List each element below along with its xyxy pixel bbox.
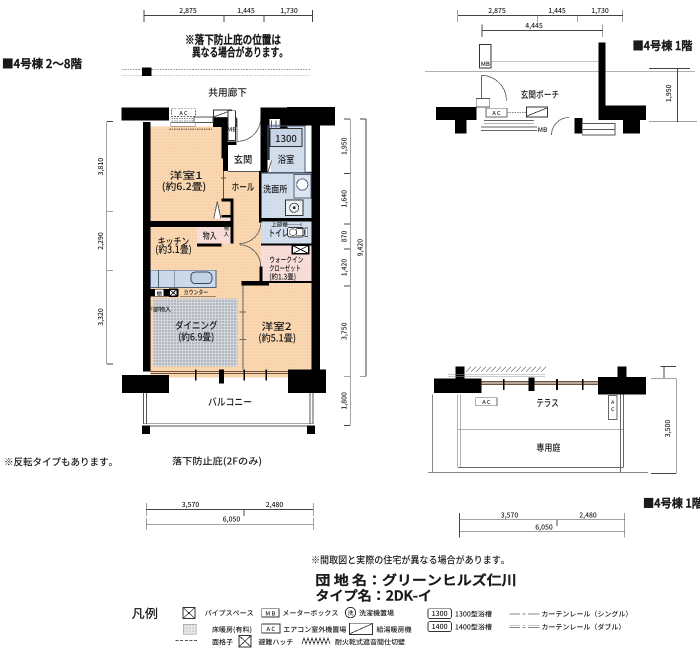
svg-text:2,480: 2,480 (266, 499, 284, 509)
svg-text:M B: M B (265, 608, 275, 617)
svg-text:トイレ: トイレ (268, 225, 288, 239)
svg-text:1300: 1300 (275, 131, 297, 145)
svg-text:メーターボックス: メーターボックス (282, 609, 338, 619)
svg-text:※反転タイプもあります。: ※反転タイプもあります。 (4, 454, 118, 469)
svg-text:3,500: 3,500 (662, 420, 672, 438)
svg-text:※間取図と実際の住宅が異なる場合があります。: ※間取図と実際の住宅が異なる場合があります。 (311, 552, 510, 567)
svg-text:給湯暖房機: 給湯暖房機 (377, 625, 412, 635)
svg-text:9,420: 9,420 (354, 239, 364, 257)
svg-text:A C: A C (492, 109, 501, 117)
svg-text:1,730: 1,730 (280, 5, 298, 15)
svg-text:A C: A C (482, 398, 491, 406)
svg-text:落下防止庇(2Fのみ): 落下防止庇(2Fのみ) (172, 454, 262, 468)
svg-text:2,875: 2,875 (488, 5, 506, 15)
svg-text:カウンター: カウンター (184, 287, 208, 296)
svg-text:棚: 棚 (156, 289, 162, 297)
svg-text:■4号棟 1階: ■4号棟 1階 (643, 495, 700, 512)
svg-text:入: 入 (224, 231, 230, 238)
svg-text:避難ハッチ: 避難ハッチ (258, 638, 293, 648)
svg-text:1,950: 1,950 (339, 137, 349, 155)
svg-text:耐火乾式遮音間仕切壁: 耐火乾式遮音間仕切壁 (335, 638, 405, 648)
svg-text:(約5.1畳): (約5.1畳) (258, 329, 296, 344)
svg-text:3,570: 3,570 (501, 509, 519, 519)
svg-text:870: 870 (339, 230, 349, 242)
svg-text:1,800: 1,800 (339, 392, 349, 410)
svg-text:玄関ポーチ: 玄関ポーチ (521, 87, 560, 101)
svg-text:1300: 1300 (432, 609, 448, 619)
svg-text:床暖房(有料): 床暖房(有料) (212, 625, 252, 635)
svg-text:1,730: 1,730 (591, 5, 609, 15)
svg-text:6,050: 6,050 (223, 514, 241, 524)
svg-text:1400型浴槽: 1400型浴槽 (455, 623, 492, 633)
svg-text:パイプスペース: パイプスペース (205, 609, 254, 619)
svg-text:洗: 洗 (348, 608, 354, 617)
svg-text:■4号棟 2〜8階: ■4号棟 2〜8階 (2, 55, 82, 72)
svg-text:1300型浴槽: 1300型浴槽 (455, 610, 492, 620)
svg-text:2,480: 2,480 (579, 509, 597, 519)
svg-text:■4号棟 1階: ■4号棟 1階 (633, 37, 693, 54)
svg-text:玄関: 玄関 (234, 151, 253, 166)
svg-text:凡例: 凡例 (132, 603, 159, 622)
svg-text:カーテンレール（ダブル）: カーテンレール（ダブル） (541, 623, 625, 633)
svg-text:異なる場合があります。: 異なる場合があります。 (192, 44, 288, 61)
svg-text:(約3.1畳): (約3.1畳) (155, 241, 192, 256)
svg-text:MB: MB (481, 59, 490, 68)
svg-text:専用庭: 専用庭 (536, 440, 560, 454)
svg-text:共用廊下: 共用廊下 (208, 84, 247, 99)
svg-text:カーテンレール（シングル）: カーテンレール（シングル） (541, 610, 632, 620)
svg-text:1,445: 1,445 (548, 5, 566, 15)
svg-text:バルコニー: バルコニー (208, 394, 252, 409)
svg-text:下部物入: 下部物入 (147, 305, 171, 314)
svg-text:テラス: テラス (536, 395, 558, 410)
svg-text:A C: A C (266, 624, 275, 633)
svg-text:1,950: 1,950 (663, 84, 673, 102)
svg-text:(約1.3畳): (約1.3畳) (269, 271, 296, 282)
svg-text:1,445: 1,445 (237, 5, 255, 15)
svg-text:1,640: 1,640 (339, 190, 349, 208)
svg-text:物入: 物入 (203, 229, 217, 242)
svg-text:A C: A C (179, 109, 188, 117)
svg-text:浴室: 浴室 (278, 151, 295, 166)
svg-text:1,420: 1,420 (339, 259, 349, 277)
svg-text:(約6.9畳): (約6.9畳) (178, 328, 214, 343)
svg-text:洗面所: 洗面所 (263, 181, 288, 195)
svg-text:2,290: 2,290 (95, 232, 105, 250)
svg-text:3,570: 3,570 (182, 499, 200, 509)
svg-text:1400: 1400 (432, 622, 448, 632)
svg-text:3,750: 3,750 (339, 322, 349, 340)
svg-text:MB: MB (538, 124, 548, 134)
svg-text:ホール: ホール (232, 179, 255, 194)
svg-text:洗濯機置場: 洗濯機置場 (359, 609, 394, 619)
svg-text:(約6.2畳): (約6.2畳) (162, 178, 207, 193)
svg-text:面格子: 面格子 (212, 638, 233, 648)
svg-text:6,050: 6,050 (535, 522, 553, 532)
svg-text:MB: MB (227, 125, 236, 134)
svg-text:2,875: 2,875 (179, 5, 197, 15)
svg-text:4,445: 4,445 (525, 20, 543, 30)
svg-text:タイプ名：2DK-イ: タイプ名：2DK-イ (315, 585, 432, 605)
svg-text:3,320: 3,320 (95, 308, 105, 326)
svg-text:3,810: 3,810 (95, 158, 105, 176)
svg-text:エアコン室外機置場: エアコン室外機置場 (283, 625, 346, 635)
